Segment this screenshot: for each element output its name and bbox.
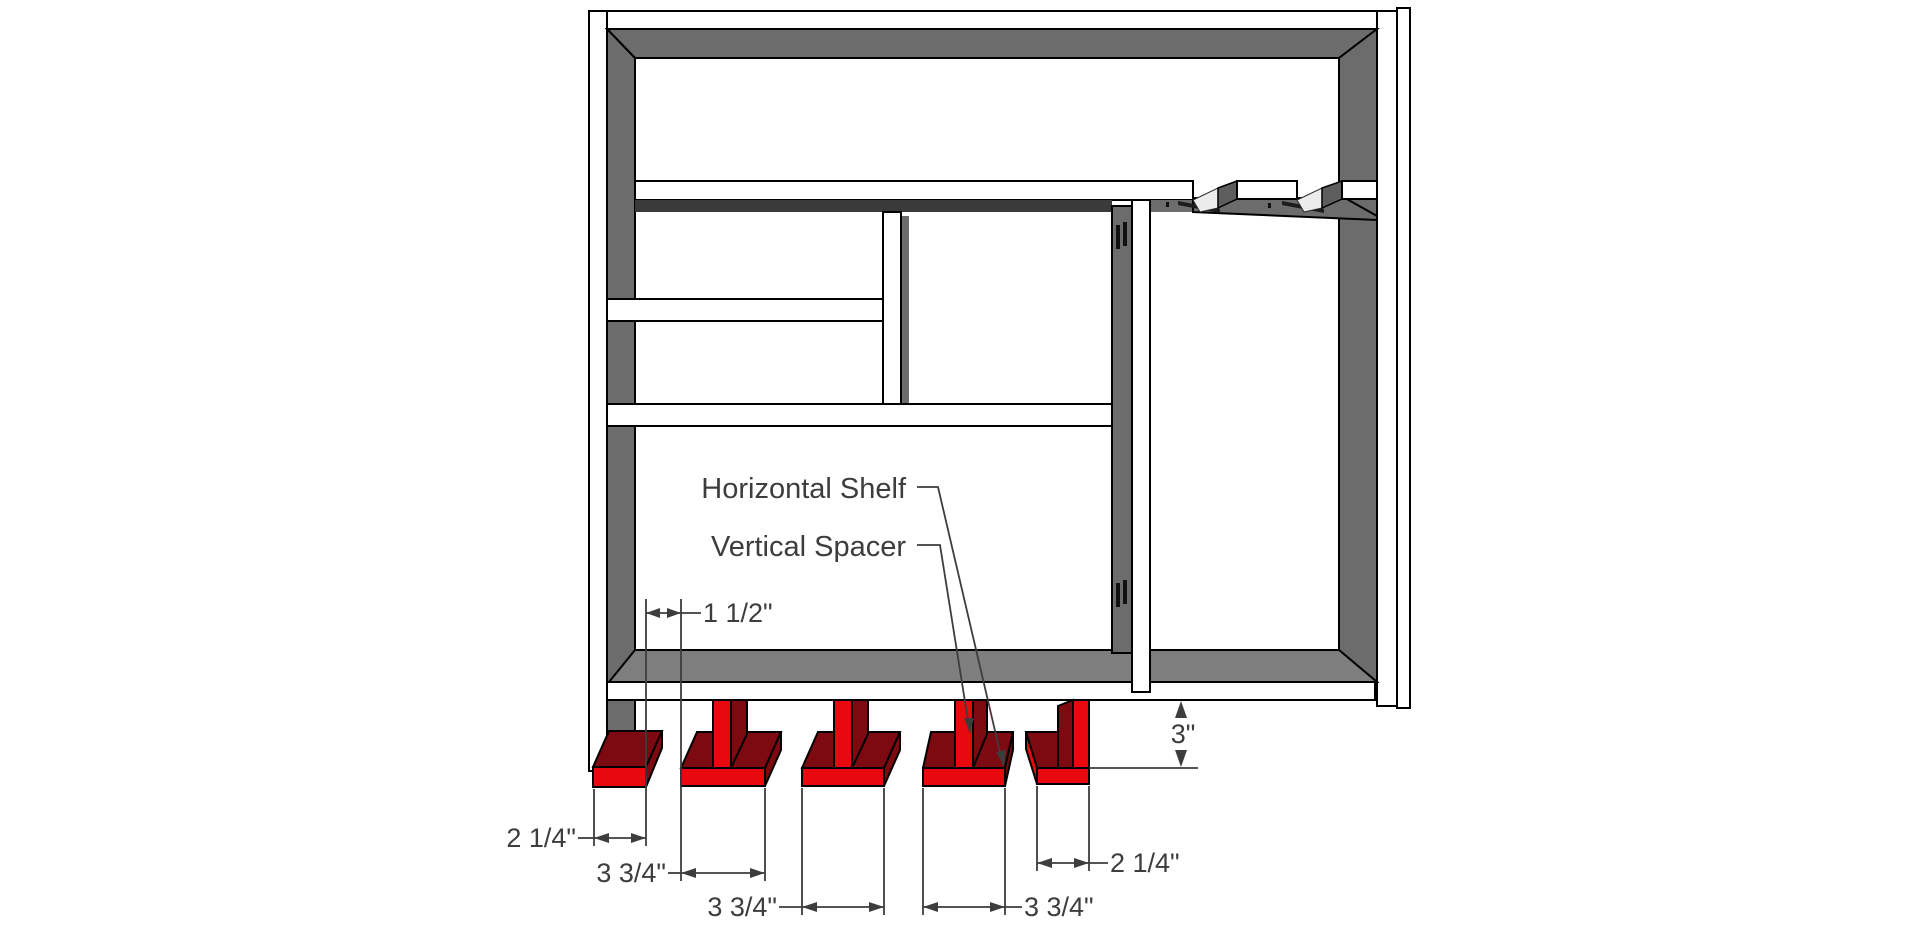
top-rail-underside: [607, 29, 1377, 58]
right-wall-front-edge: [1377, 11, 1397, 706]
foot-4-spacer-front: [955, 700, 973, 768]
foot-2-shelf-front: [681, 768, 765, 786]
label-vertical-spacer: Vertical Spacer: [711, 531, 906, 563]
dim-text-spacer-gap: 1 1/2": [703, 598, 773, 628]
slot-strip-mark-1: [1166, 202, 1169, 207]
foot-5-spacer-front: [1073, 700, 1089, 768]
dim-foot-height: 3": [1171, 701, 1196, 767]
divider-2-mark-3: [1116, 583, 1120, 607]
dim-text-foot-4: 3 3/4": [1024, 892, 1094, 922]
dim-text-right-foot: 2 1/4": [1110, 848, 1180, 878]
foot-1-shelf-front: [593, 767, 646, 787]
shelf-1: [635, 181, 1193, 200]
right-outer-strip: [1397, 8, 1410, 708]
dim-spacer-gap: 1 1/2": [646, 598, 773, 628]
bottom-rail-top-face: [609, 650, 1377, 682]
foot-4: [923, 700, 1013, 786]
dim-foot-4: 3 3/4": [923, 892, 1094, 922]
right-wall-inner-face: [1339, 29, 1377, 682]
cad-drawing-canvas: 1 1/2" 2 1/4" 3 3/4" 3 3/4": [0, 0, 1920, 937]
foot-2: [681, 700, 781, 786]
slot-block-2: [1237, 181, 1297, 199]
foot-3-spacer-front: [834, 700, 852, 768]
divider-1: [883, 212, 901, 404]
left-wall-inner-face: [607, 29, 635, 733]
shelf-3: [607, 404, 1132, 426]
divider-2-front-edge: [1132, 200, 1150, 692]
foot-3: [802, 700, 900, 786]
dim-text-foot-2: 3 3/4": [596, 858, 666, 888]
dim-text-left-foot: 2 1/4": [506, 823, 576, 853]
cabinet-frame: [589, 8, 1410, 771]
divider-2-side-face: [1112, 206, 1132, 653]
slot-block-3: [1342, 181, 1377, 199]
foot-2-spacer-front: [713, 700, 731, 768]
foot-5-spacer-side: [1058, 700, 1073, 768]
label-horizontal-shelf: Horizontal Shelf: [701, 473, 907, 505]
top-rail-front-edge: [607, 11, 1377, 29]
slot-strip-mark-2: [1268, 203, 1271, 208]
divider-2-mark-2: [1123, 222, 1127, 246]
shelf-1-shadow: [635, 200, 1112, 212]
shelf-2: [607, 299, 883, 321]
divider-2-mark-1: [1116, 225, 1120, 249]
dim-foot-3: 3 3/4": [707, 892, 884, 922]
divider-2-mark-4: [1123, 580, 1127, 604]
dim-text-foot-height: 3": [1171, 719, 1196, 749]
foot-5: [1026, 700, 1089, 784]
bottom-rail-front-edge: [607, 682, 1375, 700]
wine-glass-slots: [1166, 181, 1377, 220]
dim-right-foot: 2 1/4": [1037, 848, 1180, 878]
foot-4-shelf-front: [923, 768, 1005, 786]
foot-5-shelf-front: [1037, 768, 1089, 784]
left-wall-front-edge: [589, 11, 607, 771]
dim-left-foot: 2 1/4": [506, 823, 646, 853]
spacer-feet: [593, 700, 1089, 787]
foot-3-shelf-front: [802, 768, 884, 786]
drawing-page: 1 1/2" 2 1/4" 3 3/4" 3 3/4": [0, 0, 1920, 937]
divider-2: [1112, 200, 1150, 692]
divider-1-side-face: [901, 216, 909, 404]
dim-text-foot-3: 3 3/4": [707, 892, 777, 922]
